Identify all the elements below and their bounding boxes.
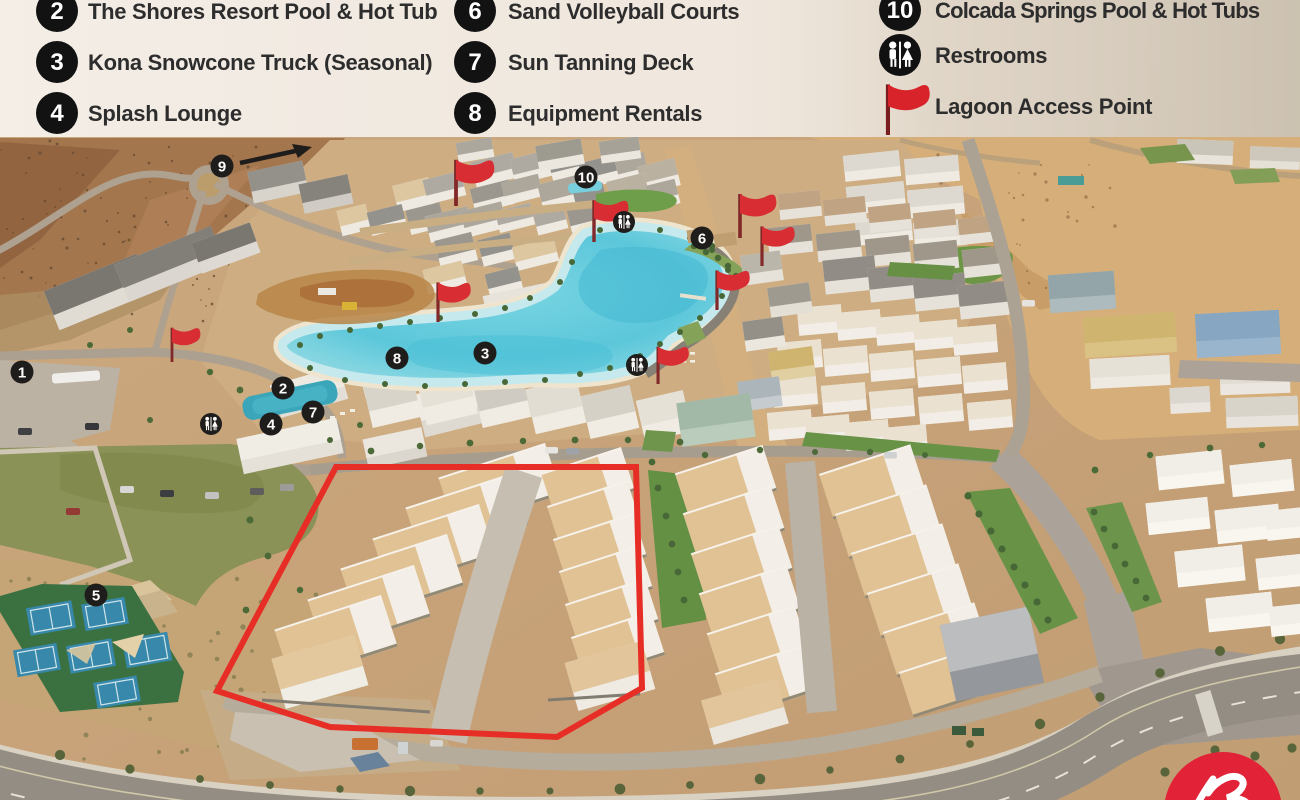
svg-text:6: 6 (468, 0, 481, 25)
svg-text:7: 7 (468, 49, 481, 76)
svg-text:Equipment Rentals: Equipment Rentals (508, 101, 702, 126)
svg-text:4: 4 (50, 100, 64, 127)
svg-text:3: 3 (50, 49, 63, 76)
svg-text:Sand Volleyball Courts: Sand Volleyball Courts (508, 0, 739, 24)
svg-text:Colcada Springs Pool & Hot Tub: Colcada Springs Pool & Hot Tubs (935, 0, 1260, 23)
svg-text:Kona Snowcone Truck (Seasonal): Kona Snowcone Truck (Seasonal) (88, 50, 432, 75)
svg-text:The Shores Resort Pool & Hot T: The Shores Resort Pool & Hot Tub (88, 0, 437, 24)
svg-text:Sun Tanning Deck: Sun Tanning Deck (508, 50, 695, 75)
svg-text:Splash Lounge: Splash Lounge (88, 101, 242, 126)
svg-text:8: 8 (468, 100, 481, 127)
svg-text:2: 2 (50, 0, 63, 25)
svg-text:Restrooms: Restrooms (935, 43, 1047, 68)
svg-text:10: 10 (887, 0, 914, 24)
svg-text:Lagoon Access Point: Lagoon Access Point (935, 94, 1153, 119)
